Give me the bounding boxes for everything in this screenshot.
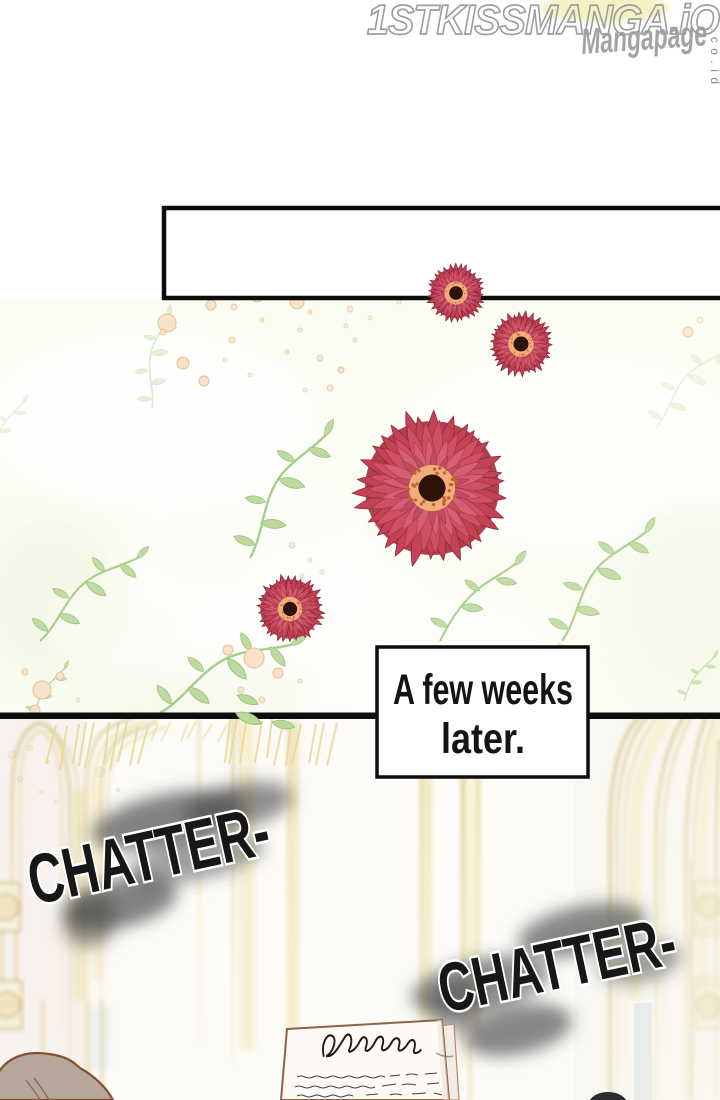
svg-text:later.: later. [441,715,525,763]
svg-text:A few weeks: A few weeks [393,666,573,714]
svg-text:1STKISSMANGA.iO: 1STKISSMANGA.iO [367,0,719,43]
